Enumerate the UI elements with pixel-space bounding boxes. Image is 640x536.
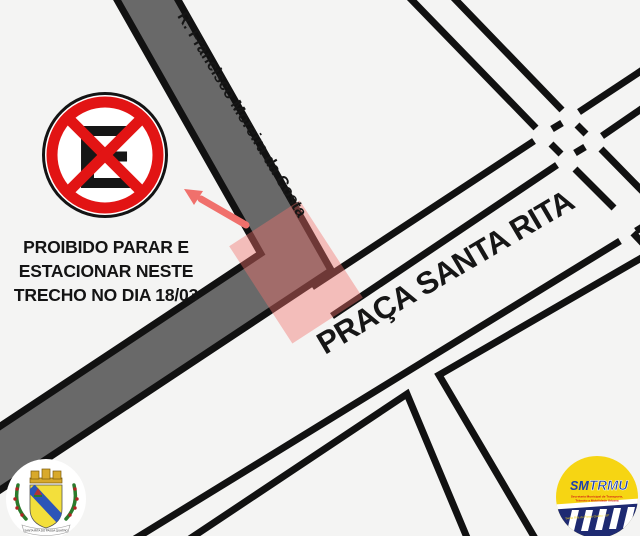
smtrmu-acronym: SM TRMU <box>570 477 629 494</box>
city-crest-logo: SANTA RITA DO PASSA QUATRO <box>6 459 86 536</box>
traffic-notice-graphic: R. Francisco Moreira da Costa PRAÇA SANT… <box>0 0 640 536</box>
notice-line-1: PROIBIDO PARAR E <box>23 237 189 257</box>
crest-crown <box>30 469 62 483</box>
notice-line-2: ESTACIONAR NESTE <box>19 261 193 281</box>
map-canvas: R. Francisco Moreira da Costa PRAÇA SANT… <box>0 0 640 536</box>
smtrmu-subtitle-2: Trânsito e Mobilidade Urbana <box>575 498 618 502</box>
smtrmu-acronym-right: TRMU <box>589 478 629 493</box>
notice-text: PROIBIDO PARAR E ESTACIONAR NESTE TRECHO… <box>14 237 199 305</box>
notice-line-3: TRECHO NO DIA 18/03 <box>14 285 199 305</box>
no-parking-sign-icon: E <box>44 94 167 217</box>
smtrmu-acronym-left: SM <box>570 479 589 493</box>
crest-banner-text: SANTA RITA DO PASSA QUATRO <box>24 529 68 533</box>
crest-tree-base <box>34 495 42 497</box>
